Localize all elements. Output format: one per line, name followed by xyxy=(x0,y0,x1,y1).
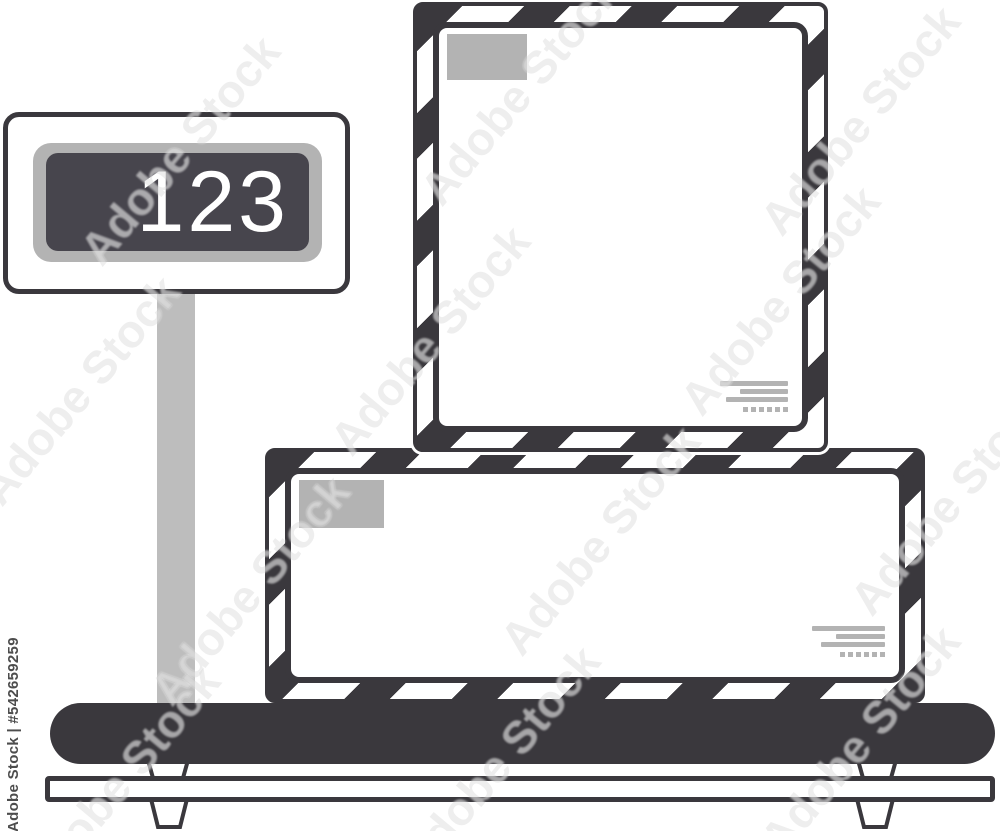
shipping-label xyxy=(299,480,384,528)
scale-illustration: Adobe Stock Adobe Stock Adobe Stock Adob… xyxy=(0,0,1000,831)
display-pole xyxy=(157,292,195,716)
scale-display: 123 xyxy=(3,112,350,294)
address-line xyxy=(812,626,885,631)
address-line xyxy=(726,397,788,402)
weight-readout: 123 xyxy=(137,159,290,245)
address-block xyxy=(720,381,788,412)
scale-base-bar xyxy=(45,776,995,802)
display-frame: 123 xyxy=(33,143,322,262)
scale-platform xyxy=(50,703,995,764)
shipping-label xyxy=(447,34,527,80)
address-line xyxy=(836,634,885,639)
address-block xyxy=(812,626,885,657)
package-box-lower xyxy=(265,448,925,703)
package-face xyxy=(285,468,905,683)
address-line xyxy=(740,389,788,394)
package-box-top xyxy=(413,2,828,452)
package-face xyxy=(433,22,808,432)
address-line xyxy=(821,642,885,647)
address-line xyxy=(720,381,788,386)
barcode-dots xyxy=(840,652,885,657)
barcode-dots xyxy=(743,407,788,412)
stock-credit-text: Adobe Stock | #542659259 xyxy=(5,582,22,831)
display-screen: 123 xyxy=(46,153,309,251)
